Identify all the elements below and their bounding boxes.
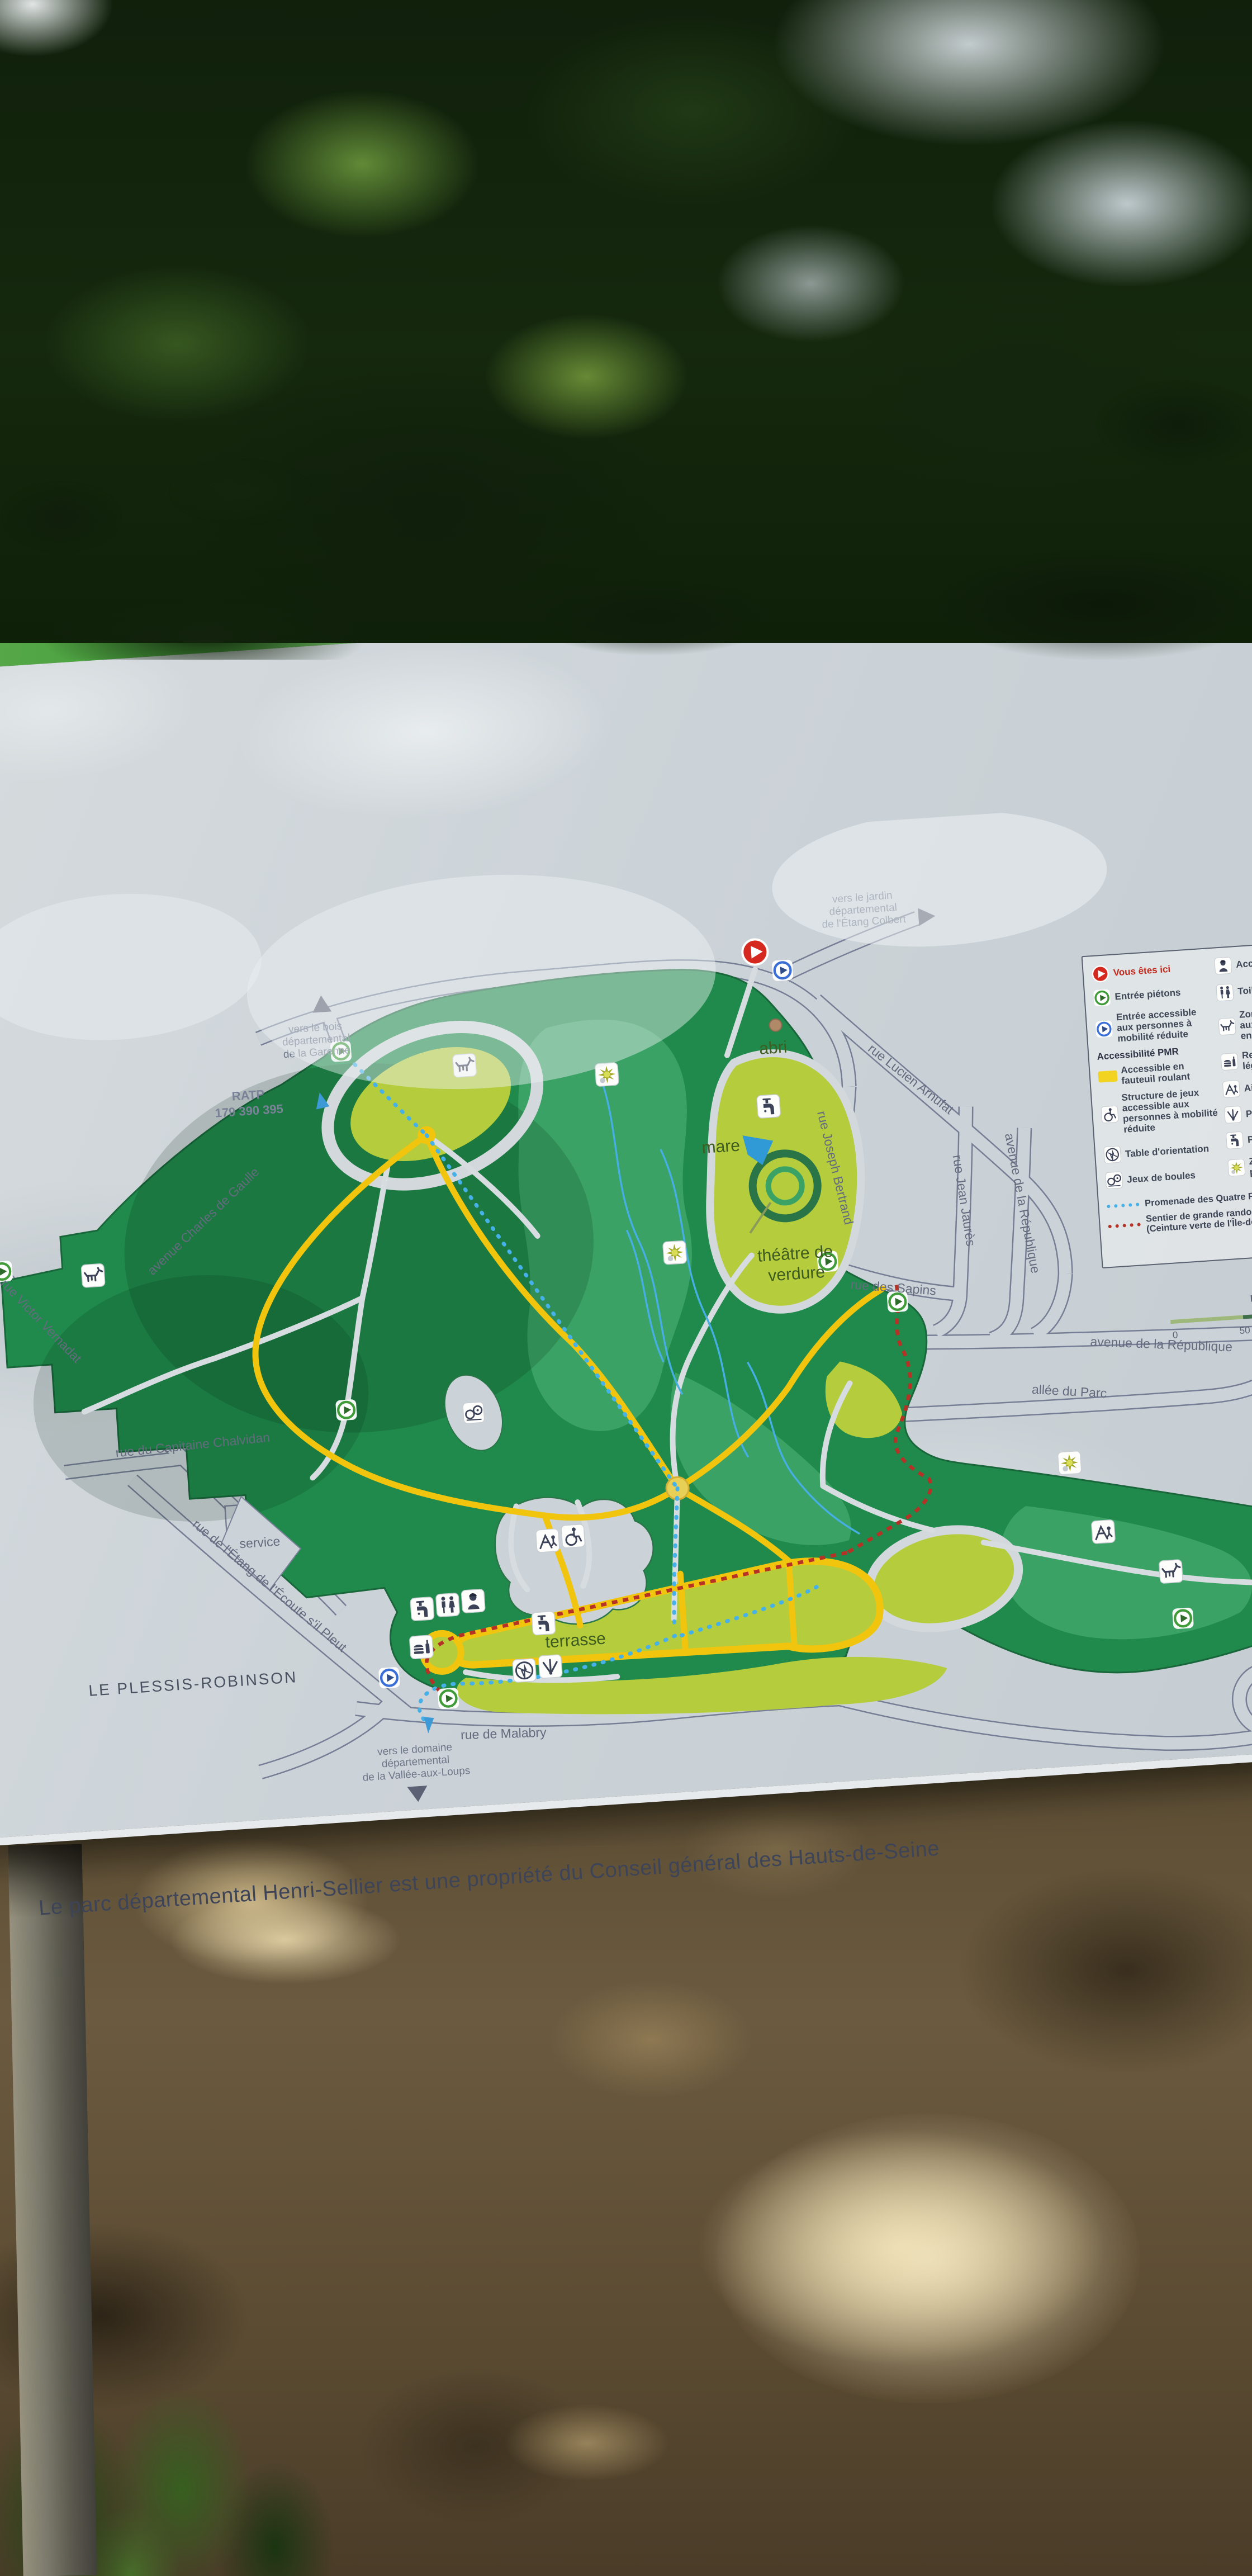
protected-area-icon — [1227, 1158, 1246, 1177]
scale-bar-left — [1170, 1315, 1243, 1324]
accessible-entrance-icon — [1094, 1019, 1113, 1038]
orientation-table-icon — [513, 1659, 537, 1683]
map-legend: Vous êtes ici Entrée piétons Entrée acce… — [1082, 940, 1252, 1268]
sign-post — [8, 1844, 97, 2576]
photo-of-park-sign: Parc départemental Henri-Sellier — [0, 0, 1252, 2576]
theatre-label-line2: verdure — [767, 1263, 826, 1285]
leaf-litter — [503, 2404, 671, 2482]
legend-left-column: Vous êtes ici Entrée piétons Entrée acce… — [1091, 958, 1225, 1196]
reception-icon — [1213, 956, 1232, 976]
legend-item: Toilettes — [1215, 977, 1252, 1002]
legend-item: Table d'orientation — [1103, 1139, 1222, 1164]
water-point-icon — [1225, 1131, 1244, 1150]
leaf-cluster — [168, 458, 313, 525]
reception-icon — [461, 1589, 485, 1613]
legend-item: Point eau — [1225, 1125, 1252, 1150]
legend-item: Vous êtes ici — [1091, 958, 1211, 983]
light-reflections — [0, 801, 1118, 1121]
leaf-cluster — [0, 481, 123, 553]
park-information-sign: Parc départemental Henri-Sellier — [0, 429, 1252, 1841]
accessible-entrance-icon — [378, 1667, 400, 1689]
legend-item: Zone naturelle protégée — [1227, 1150, 1252, 1179]
dog-zone-icon — [81, 1263, 105, 1287]
light-food-icon — [409, 1635, 433, 1659]
legend-item: Accessible en fauteuil roulant — [1098, 1059, 1217, 1088]
street-label: rue Lucien Arnufat — [865, 1041, 956, 1117]
accessible-playground-icon — [561, 1524, 585, 1548]
playground-icon — [1222, 1079, 1241, 1098]
petanque-icon — [463, 1402, 485, 1424]
scale-bar-right — [1243, 1310, 1252, 1319]
dogs-on-leash-icon — [1217, 1017, 1236, 1036]
leaf-cluster — [1095, 380, 1252, 470]
city-label: LE PLESSIS-ROBINSON — [88, 1668, 298, 1699]
pedestrian-entrance-icon — [1093, 988, 1112, 1007]
north-label: NORD — [1250, 1291, 1252, 1304]
red-dashed-route-sample — [1108, 1223, 1141, 1229]
legend-item: Zone accessible aux chiens tenus en lais… — [1217, 1003, 1252, 1043]
pedestrian-entrance-icon — [335, 1399, 357, 1421]
abri-label: abri — [758, 1038, 788, 1058]
legend-item: Accueil — [1213, 950, 1252, 976]
legend-item: Entrée accessible aux personnes à mobili… — [1094, 1006, 1214, 1045]
playground-icon — [535, 1528, 559, 1552]
map-panel: abri mare théâtre de verdure terrasse se… — [0, 580, 1252, 1849]
legend-item: Entrée piétons — [1093, 982, 1212, 1007]
you-are-here-icon — [742, 939, 769, 965]
abri-dot — [769, 1019, 782, 1031]
water-point-icon — [757, 1095, 781, 1119]
orientation-table-icon — [1103, 1145, 1122, 1164]
light-food-icon — [1220, 1052, 1239, 1071]
street-label: rue Jean Jaurès — [950, 1154, 979, 1247]
petanque-icon — [1104, 1171, 1123, 1190]
park-map: abri mare théâtre de verdure terrasse se… — [0, 794, 1252, 1865]
scale-fifty: 50 — [1239, 1325, 1250, 1336]
legend-item: Point de vue — [1223, 1099, 1252, 1124]
pedestrian-entrance-icon — [438, 1688, 459, 1710]
viewpoint-icon — [1223, 1105, 1242, 1124]
mare-label: mare — [701, 1137, 741, 1157]
sunlit-leaves-patch — [715, 2113, 1140, 2404]
viewpoint-icon — [538, 1655, 562, 1679]
wheelchair-path-swatch — [1098, 1071, 1117, 1083]
protected-area-icon — [663, 1240, 687, 1265]
bus-stop-arrow — [424, 1716, 435, 1734]
south-exit-arrow — [407, 1786, 428, 1802]
legend-item: Jeux de boules — [1104, 1164, 1224, 1190]
legend-item: Restauration légère — [1220, 1044, 1252, 1073]
street-label: allée du Parc — [1031, 1382, 1107, 1400]
water-point-icon — [410, 1597, 434, 1621]
accessible-entrance-icon — [772, 959, 794, 981]
protected-area-icon — [1057, 1451, 1082, 1475]
blue-dashed-route-sample — [1107, 1202, 1139, 1208]
water-point-icon — [532, 1611, 556, 1635]
toilets-icon — [1215, 983, 1234, 1002]
dog-zone-icon — [1159, 1560, 1183, 1584]
playground-icon — [1091, 1520, 1115, 1544]
street-label: rue de Malabry — [461, 1725, 547, 1742]
service-label: service — [239, 1534, 281, 1551]
pedestrian-entrance-icon — [1172, 1607, 1194, 1629]
legend-item: Aire de jeux — [1222, 1073, 1252, 1098]
bus-agency-label: RATP — [231, 1087, 265, 1104]
legend-item: Structure de jeux accessible aux personn… — [1099, 1086, 1221, 1137]
toilets-icon — [436, 1593, 460, 1617]
you-are-here-icon — [1091, 964, 1110, 983]
scale-zero: 0 — [1172, 1329, 1178, 1341]
accessible-playground-icon — [1100, 1105, 1119, 1124]
